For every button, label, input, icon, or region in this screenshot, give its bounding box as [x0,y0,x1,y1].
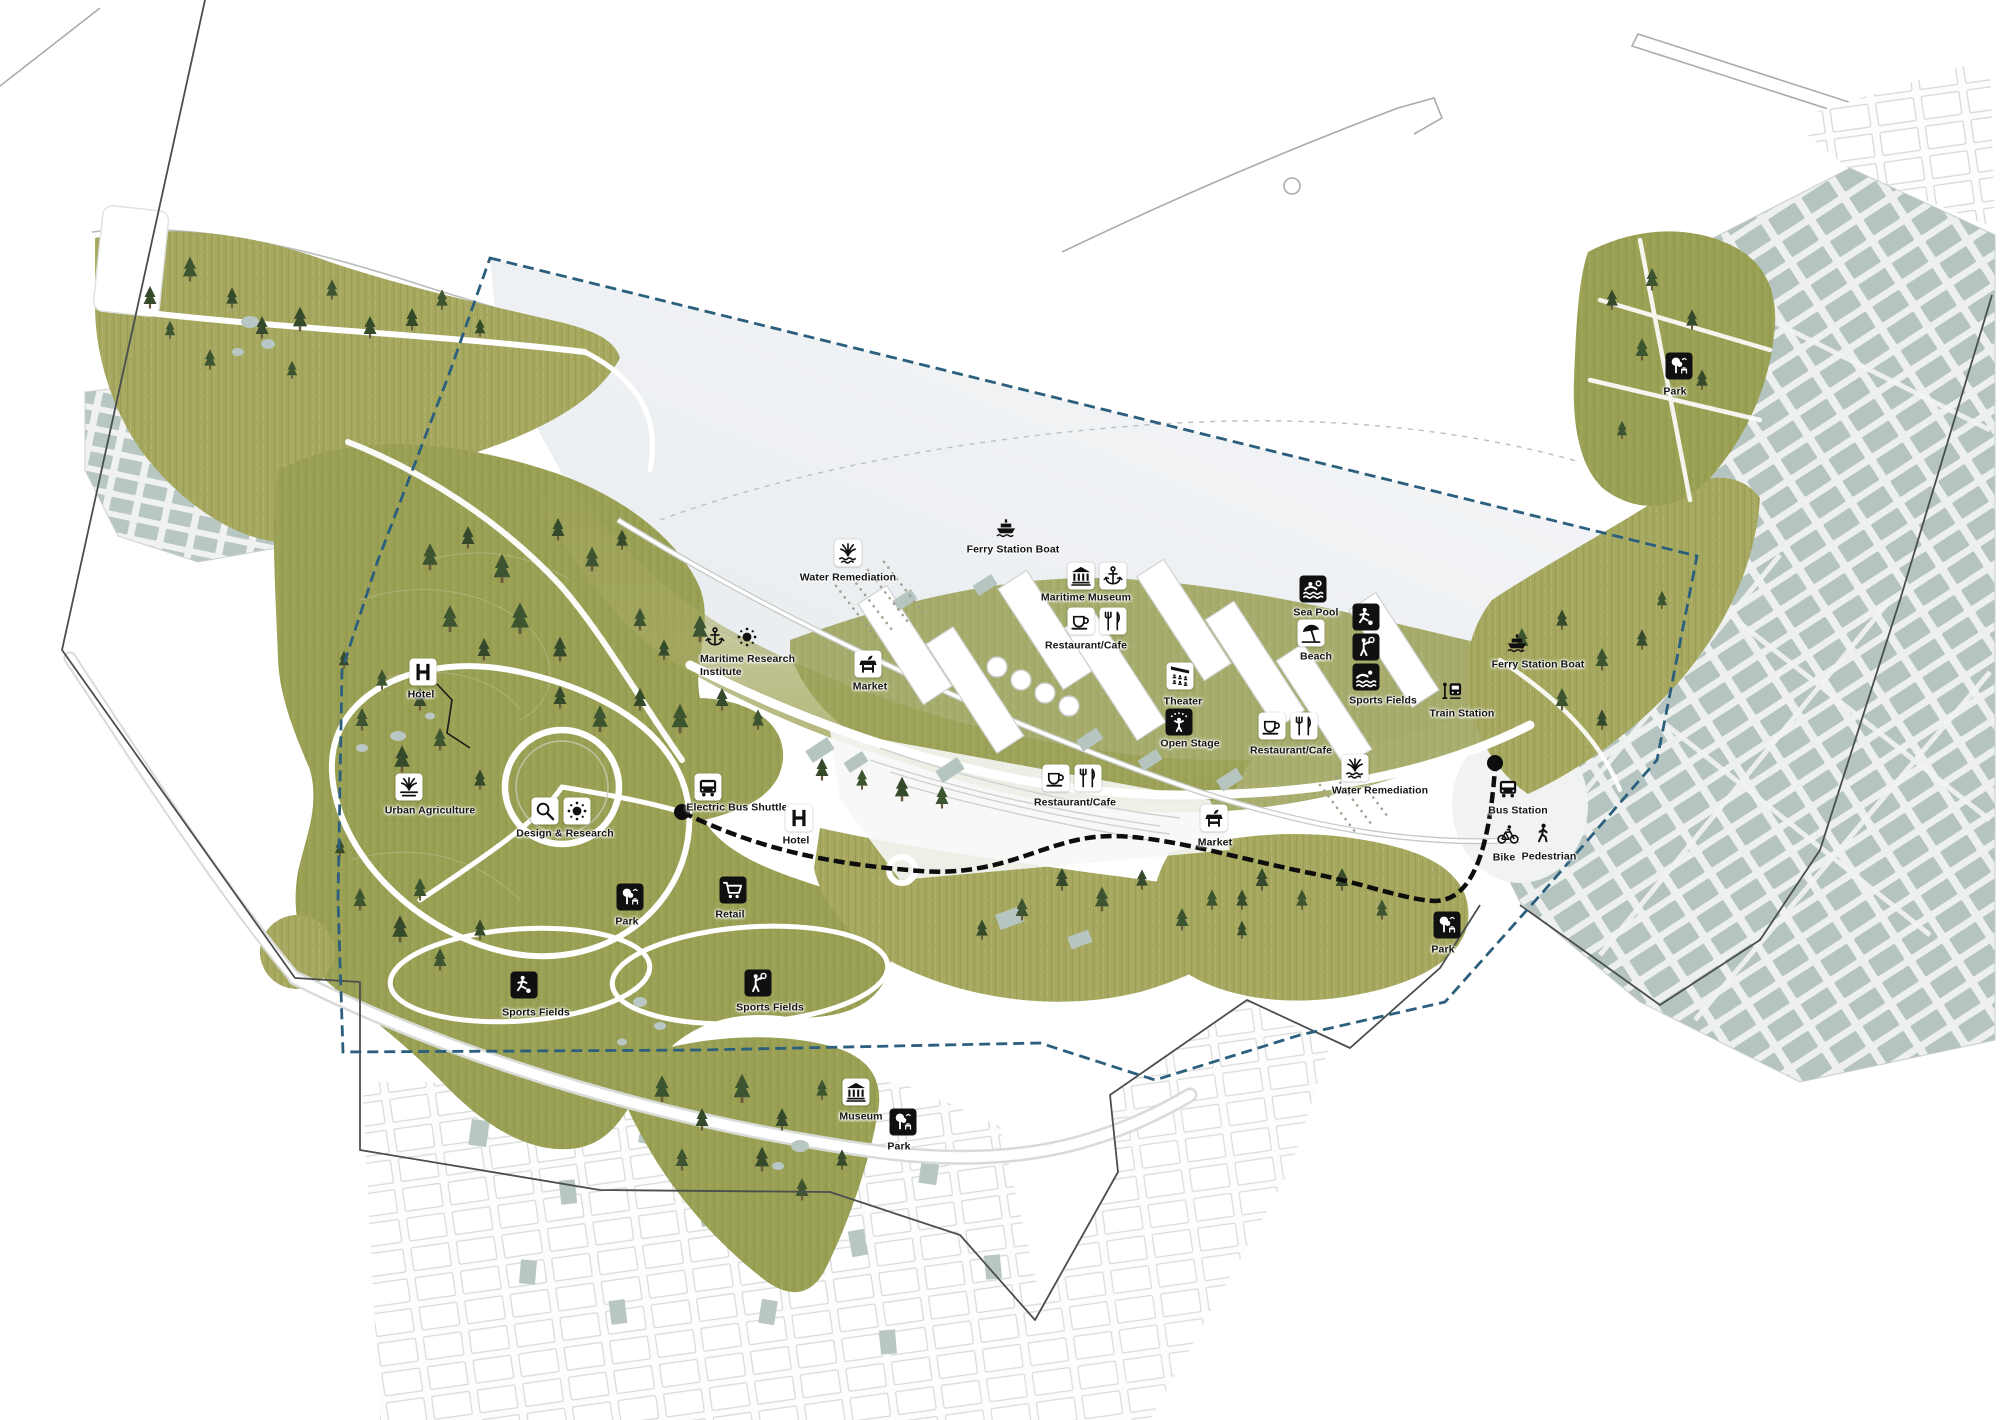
bike-icon [1495,822,1522,849]
tennis-icon [745,970,772,997]
park-east-label: Park [1431,943,1454,956]
design-research-marker [532,798,591,825]
cart-icon [720,877,747,904]
cup-icon [1043,765,1070,792]
open-stage-marker [1166,709,1193,736]
maritime-research-institute-marker [702,624,761,651]
restaurant-cafe-2-label: Restaurant/Cafe [1250,744,1332,757]
ferry-station-boat-2-marker [1504,628,1531,655]
water-remediation-1-label: Water Remediation [800,571,896,584]
cutlery-icon [1291,713,1318,740]
pool-icon [1300,576,1327,603]
sun-icon [564,798,591,825]
maritime-research-institute-label: Maritime Research Institute [700,653,795,679]
market-2-label: Market [1198,836,1232,849]
water-remediation-2-marker [1342,755,1369,782]
hotelH-icon [786,805,813,832]
museum-south-marker [843,1079,870,1106]
park-east-marker [1434,912,1461,939]
cutlery-icon [1100,608,1127,635]
sports-fields-sw1-label: Sports Fields [502,1006,570,1019]
market-2-marker [1201,805,1228,832]
retail-label: Retail [715,908,744,921]
sports-fields-sw2-marker [745,970,772,997]
cup-icon [1068,608,1095,635]
sports-fields-sw2-label: Sports Fields [736,1001,804,1014]
train-station-marker [1439,677,1466,704]
park-ne-marker [1666,353,1693,380]
sun-icon [734,624,761,651]
restaurant-cafe-3-label: Restaurant/Cafe [1034,796,1116,809]
park-west-marker [617,884,644,911]
restaurant-cafe-2-marker [1259,713,1318,740]
museum-icon [843,1079,870,1106]
bus-icon [1495,775,1522,802]
beach-label: Beach [1300,650,1332,663]
ferry-icon [1504,628,1531,655]
park-ne-label: Park [1663,385,1686,398]
reeds-icon [1342,755,1369,782]
beach-marker [1298,620,1325,647]
bus-station-label: Bus Station [1488,804,1547,817]
electric-bus-shuttle-label: Electric Bus Shuttle [686,801,787,814]
water-remediation-2-label: Water Remediation [1332,784,1428,797]
umbrella-icon [1298,620,1325,647]
design-research-label: Design & Research [516,827,613,840]
reeds-icon [835,540,862,567]
pedestrian-marker [1530,820,1557,847]
magnifier-icon [532,798,559,825]
electric-bus-shuttle-marker [695,774,722,801]
restaurant-cafe-3-marker [1043,765,1102,792]
urban-agriculture-label: Urban Agriculture [385,804,476,817]
park-west-label: Park [615,915,638,928]
market-1-marker [855,651,882,678]
marketstall-icon [855,651,882,678]
parktree-icon [617,884,644,911]
train-icon [1439,677,1466,704]
poi-layer: Water RemediationFerry Station BoatMarit… [0,0,2000,1420]
anchor-icon [702,624,729,651]
maritime-museum-marker [1068,563,1127,590]
cutlery-icon [1075,765,1102,792]
theater-marker [1167,663,1194,690]
bus-station-marker [1495,775,1522,802]
ferry-station-boat-1-label: Ferry Station Boat [967,543,1060,556]
theaterseats-icon [1167,663,1194,690]
hotelH-icon [410,659,437,686]
hotel-west-marker [410,659,437,686]
sports-fields-ne-label: Sports Fields [1349,694,1417,707]
ferry-station-boat-1-marker [993,513,1020,540]
maritime-museum-label: Maritime Museum [1041,591,1131,604]
bike-marker [1495,822,1522,849]
urban-agriculture-marker [396,774,423,801]
retail-marker [720,877,747,904]
soccer-icon [1353,604,1380,631]
restaurant-cafe-1-label: Restaurant/Cafe [1045,639,1127,652]
masterplan-map: Water RemediationFerry Station BoatMarit… [0,0,2000,1420]
walk-icon [1530,820,1557,847]
pedestrian-label: Pedestrian [1522,850,1577,863]
bus-icon [695,774,722,801]
theater-label: Theater [1164,695,1203,708]
swim-icon [1353,664,1380,691]
anchor-icon [1100,563,1127,590]
ferry-icon [993,513,1020,540]
museum-icon [1068,563,1095,590]
sea-pool-label: Sea Pool [1293,606,1338,619]
train-station-label: Train Station [1430,707,1495,720]
ferry-station-boat-2-label: Ferry Station Boat [1492,658,1585,671]
parktree-icon [1434,912,1461,939]
cup-icon [1259,713,1286,740]
park-south-marker [890,1109,917,1136]
parktree-icon [890,1109,917,1136]
hotel-central-label: Hotel [783,834,810,847]
marketstall-icon [1201,805,1228,832]
open-stage-label: Open Stage [1160,737,1219,750]
sea-pool-marker [1300,576,1327,603]
parktree-icon [1666,353,1693,380]
bike-label: Bike [1493,851,1516,864]
sports-fields-ne-marker [1353,604,1380,691]
park-south-label: Park [887,1140,910,1153]
hotel-west-label: Hotel [408,688,435,701]
plant-icon [396,774,423,801]
stage-icon [1166,709,1193,736]
soccer-icon [511,972,538,999]
restaurant-cafe-1-marker [1068,608,1127,635]
museum-south-label: Museum [839,1110,882,1123]
sports-fields-sw1-marker [511,972,538,999]
hotel-central-marker [786,805,813,832]
market-1-label: Market [853,680,887,693]
tennis-icon [1353,634,1380,661]
water-remediation-1-marker [835,540,862,567]
